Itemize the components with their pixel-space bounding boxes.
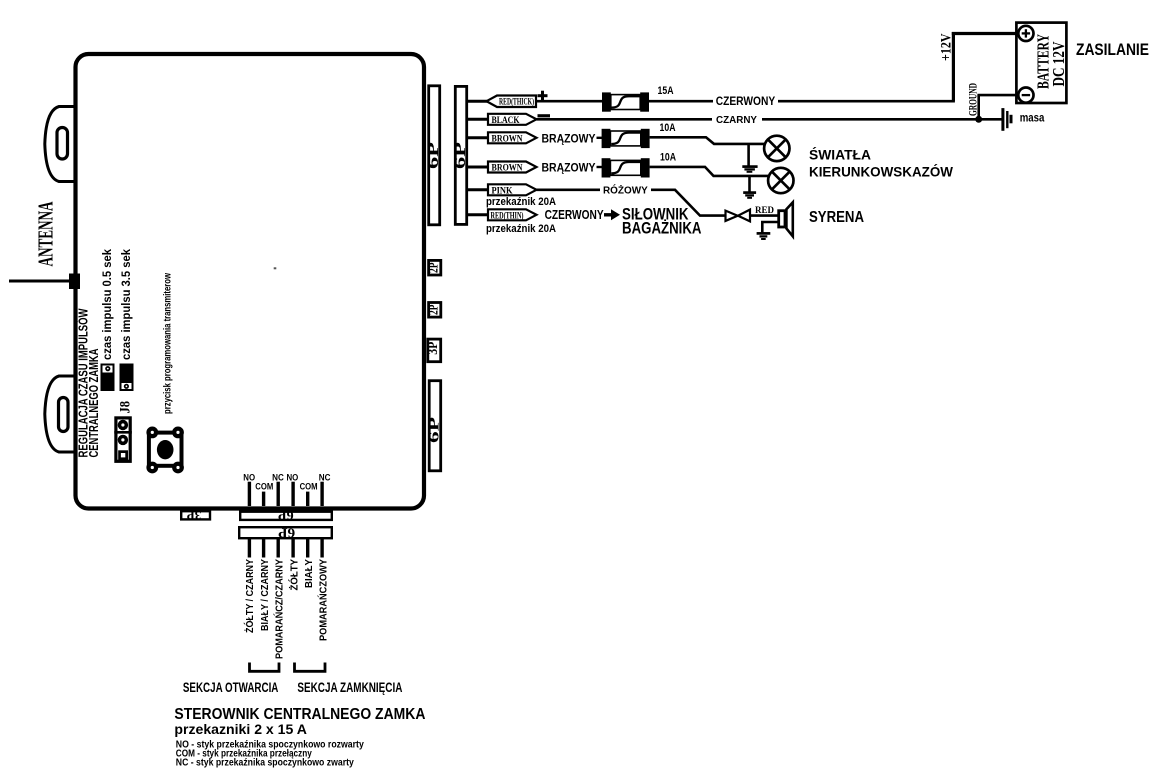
svg-text:przycisk programowania trans: przycisk programowania transmiterow	[161, 272, 173, 414]
svg-text:POMARAŃCZ/CZARNY: POMARAŃCZ/CZARNY	[273, 559, 286, 659]
svg-text:przekaźnik 20A: przekaźnik 20A	[486, 223, 556, 235]
svg-text:6P: 6P	[278, 524, 295, 539]
svg-text:masa: masa	[1020, 111, 1045, 125]
svg-text:POMARAŃCZOWY: POMARAŃCZOWY	[316, 559, 329, 641]
svg-text:3P: 3P	[187, 508, 202, 523]
svg-text:J8: J8	[118, 401, 134, 414]
svg-text:GROUND: GROUND	[967, 83, 979, 116]
svg-text:ŚWIATŁA: ŚWIATŁA	[809, 146, 871, 163]
svg-text:10A: 10A	[660, 151, 676, 163]
svg-text:BRĄZOWY: BRĄZOWY	[542, 161, 596, 175]
svg-text:NO: NO	[243, 472, 255, 483]
svg-text:BROWN: BROWN	[492, 134, 523, 144]
svg-text:2P: 2P	[427, 262, 441, 273]
svg-text:ANTENNA: ANTENNA	[34, 201, 58, 267]
svg-text:przekaźnik 20A: przekaźnik 20A	[486, 196, 556, 208]
svg-text:COM: COM	[255, 482, 273, 493]
svg-text:SEKCJA ZAMKNIĘCIA: SEKCJA ZAMKNIĘCIA	[297, 680, 402, 695]
svg-text:15A: 15A	[658, 85, 674, 97]
svg-text:6P: 6P	[425, 141, 442, 169]
svg-text:czas impulsu 0.5 sek: czas impulsu 0.5 sek	[102, 248, 114, 360]
svg-text:6P: 6P	[426, 417, 442, 443]
svg-text:RED(THICK): RED(THICK)	[499, 97, 534, 108]
svg-text:+12V: +12V	[939, 33, 955, 61]
svg-text:BIAŁY: BIAŁY	[303, 559, 315, 588]
svg-text:2P: 2P	[427, 304, 441, 315]
svg-text:SEKCJA OTWARCIA: SEKCJA OTWARCIA	[183, 680, 279, 695]
svg-text:ZASILANIE: ZASILANIE	[1076, 41, 1149, 59]
svg-text:SYRENA: SYRENA	[809, 209, 864, 226]
svg-text:6P: 6P	[278, 508, 294, 523]
svg-text:CZERWONY: CZERWONY	[716, 96, 776, 108]
svg-text:ŻÓŁTY / CZARNY: ŻÓŁTY / CZARNY	[243, 559, 256, 633]
svg-text:COM: COM	[300, 482, 318, 493]
svg-text:CZERWONY: CZERWONY	[545, 207, 604, 222]
svg-text:BAGAŻNIKA: BAGAŻNIKA	[622, 220, 702, 238]
svg-text:DC 12V: DC 12V	[1049, 41, 1068, 87]
svg-text:CENTRALNEGO ZAMKA: CENTRALNEGO ZAMKA	[87, 349, 101, 458]
svg-text:3P: 3P	[426, 341, 441, 355]
svg-text:RED(THIN): RED(THIN)	[491, 210, 524, 221]
svg-text:PINK: PINK	[492, 186, 514, 196]
svg-text:NC - styk przekaźnika spo: NC - styk przekaźnika spoczynkowo zwarty	[176, 758, 354, 769]
svg-text:czas impulsu 3.5 sek: czas impulsu 3.5 sek	[121, 248, 133, 360]
svg-text:KIERUNKOWSKAZÓW: KIERUNKOWSKAZÓW	[809, 163, 954, 180]
svg-text:BROWN: BROWN	[492, 164, 523, 174]
svg-text:BLACK: BLACK	[492, 116, 520, 126]
svg-text:przekazniki 2 x 15 A: przekazniki 2 x 15 A	[174, 721, 307, 737]
svg-text:BRĄZOWY: BRĄZOWY	[542, 132, 596, 146]
svg-text:NC: NC	[272, 472, 284, 483]
svg-text:10A: 10A	[660, 122, 676, 134]
svg-text:RÓŻOWY: RÓŻOWY	[603, 184, 648, 197]
svg-text:NC: NC	[319, 472, 331, 483]
svg-text:NO: NO	[287, 472, 299, 483]
svg-text:6P: 6P	[452, 141, 469, 169]
svg-text:ŻÓŁTY: ŻÓŁTY	[287, 559, 300, 591]
svg-text:CZARNY: CZARNY	[716, 115, 757, 126]
svg-text:BIAŁY / CZARNY: BIAŁY / CZARNY	[259, 559, 271, 631]
